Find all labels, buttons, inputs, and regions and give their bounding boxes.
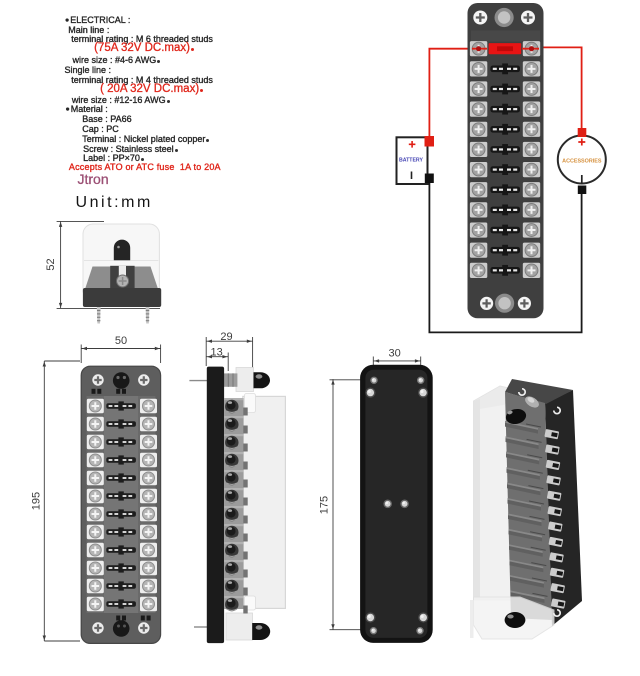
svg-text:195: 195 — [31, 492, 43, 510]
svg-text:30: 30 — [388, 348, 400, 360]
svg-text:50: 50 — [115, 335, 127, 347]
svg-text:52: 52 — [45, 258, 57, 270]
svg-text:175: 175 — [319, 496, 331, 514]
svg-text:BATTERY: BATTERY — [399, 158, 423, 164]
svg-text:ACCESSORIES: ACCESSORIES — [562, 159, 602, 165]
